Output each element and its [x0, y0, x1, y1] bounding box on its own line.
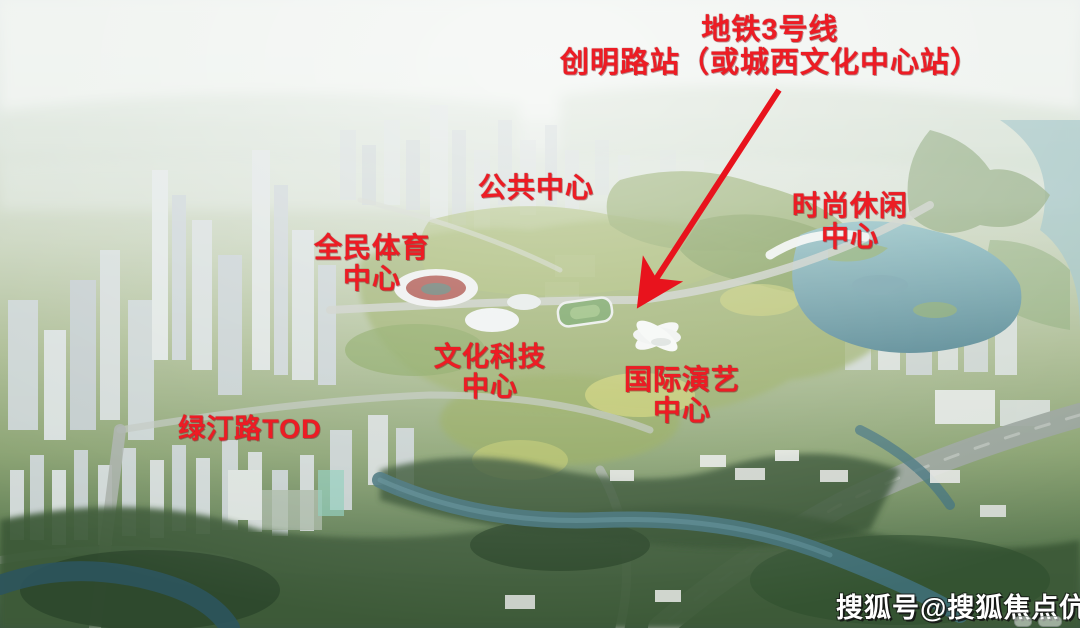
callout-performing-arts-center: 国际演艺 中心: [624, 364, 740, 427]
aerial-masterplan-image: 地铁3号线 创明路站（或城西文化中心站） 公共中心 全民体育 中心 时尚休闲 中…: [0, 0, 1080, 628]
atmosphere-overlay: [0, 0, 1080, 628]
callout-culture-technology-center: 文化科技 中心: [434, 342, 546, 402]
aerial-render-background: [0, 0, 1080, 628]
callout-lvting-road-tod: 绿汀路TOD: [178, 414, 322, 444]
callout-metro-line3-station: 地铁3号线 创明路站（或城西文化中心站）: [560, 14, 980, 81]
callout-national-sports-center: 全民体育 中心: [314, 232, 430, 295]
metro-title-line2: 创明路站（或城西文化中心站）: [560, 47, 980, 80]
corner-chip-icon: [1014, 616, 1032, 627]
callout-fashion-leisure-center: 时尚休闲 中心: [792, 190, 908, 253]
metro-title-line1: 地铁3号线: [560, 14, 980, 47]
corner-chip-icon: [1038, 616, 1062, 627]
callout-public-center: 公共中心: [478, 172, 594, 203]
